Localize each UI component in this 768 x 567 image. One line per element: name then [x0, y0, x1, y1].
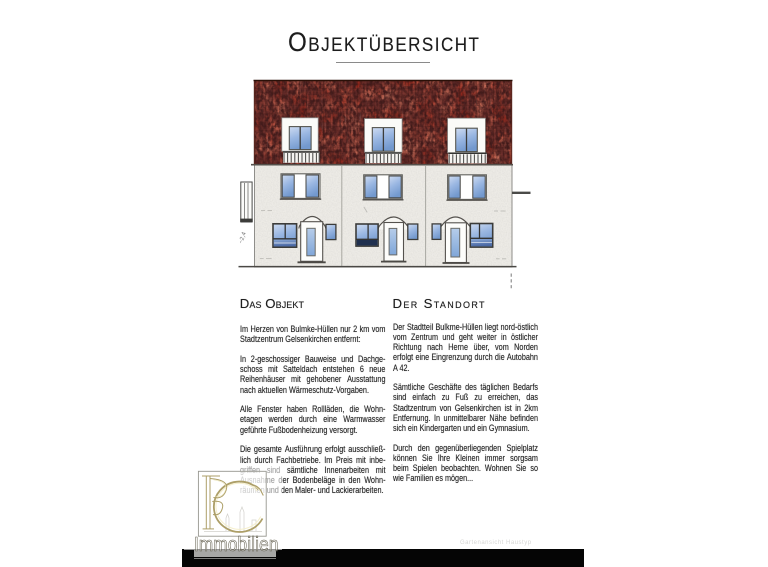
svg-text:~2,4: ~2,4	[238, 231, 248, 245]
